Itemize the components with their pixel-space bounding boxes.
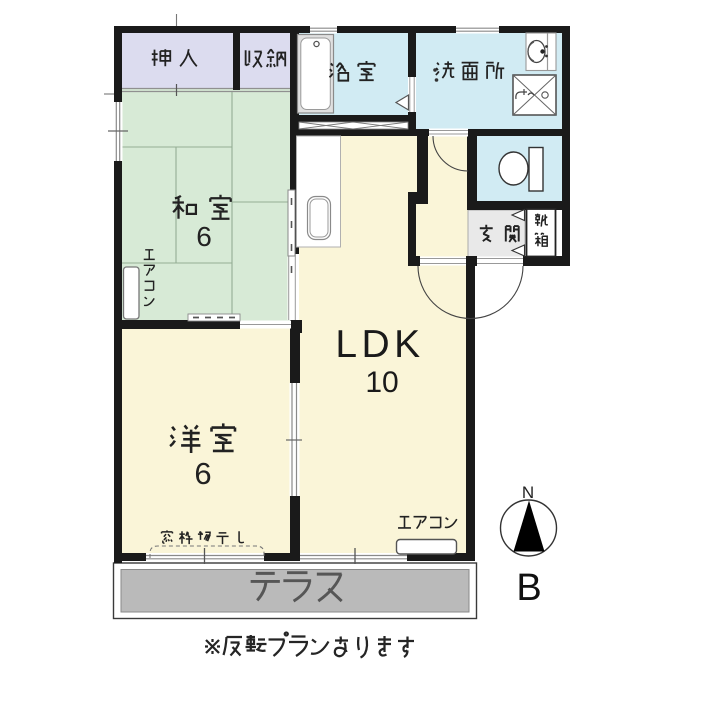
svg-text:6: 6 xyxy=(194,456,211,491)
svg-text:LDK: LDK xyxy=(335,323,424,366)
svg-text:10: 10 xyxy=(365,366,398,399)
svg-text:N: N xyxy=(522,483,534,502)
svg-text:6: 6 xyxy=(196,221,212,252)
svg-text:B: B xyxy=(516,567,541,609)
